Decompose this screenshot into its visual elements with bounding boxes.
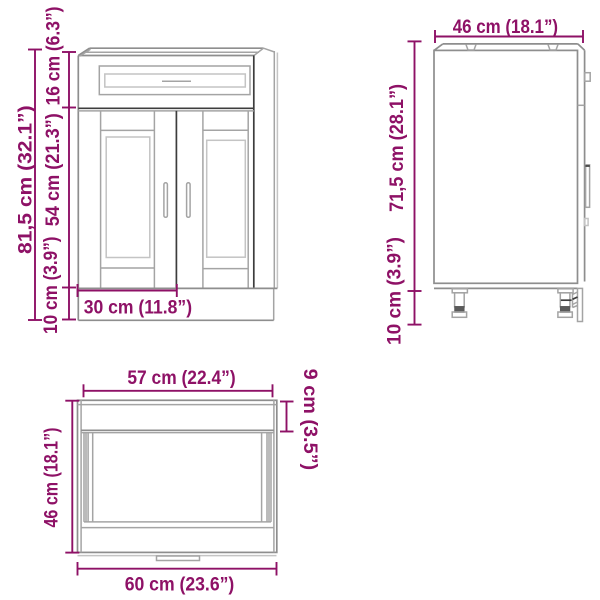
svg-text:54 cm (21.3”): 54 cm (21.3”)	[43, 113, 64, 226]
svg-text:60 cm (23.6”): 60 cm (23.6”)	[125, 575, 235, 596]
svg-text:46 cm (18.1”): 46 cm (18.1”)	[42, 428, 63, 528]
svg-text:9 cm (3.5”): 9 cm (3.5”)	[299, 369, 320, 471]
svg-text:16 cm (6.3”): 16 cm (6.3”)	[44, 7, 65, 106]
svg-text:81,5 cm (32.1”): 81,5 cm (32.1”)	[16, 105, 37, 254]
svg-text:71,5 cm (28.1”): 71,5 cm (28.1”)	[387, 84, 408, 212]
svg-text:10 cm (3.9”): 10 cm (3.9”)	[385, 237, 406, 345]
svg-text:30 cm (11.8”): 30 cm (11.8”)	[84, 298, 192, 319]
svg-text:10 cm (3.9”): 10 cm (3.9”)	[41, 236, 62, 334]
svg-text:46 cm (18.1”): 46 cm (18.1”)	[453, 17, 558, 38]
svg-text:57 cm (22.4”): 57 cm (22.4”)	[127, 368, 235, 389]
